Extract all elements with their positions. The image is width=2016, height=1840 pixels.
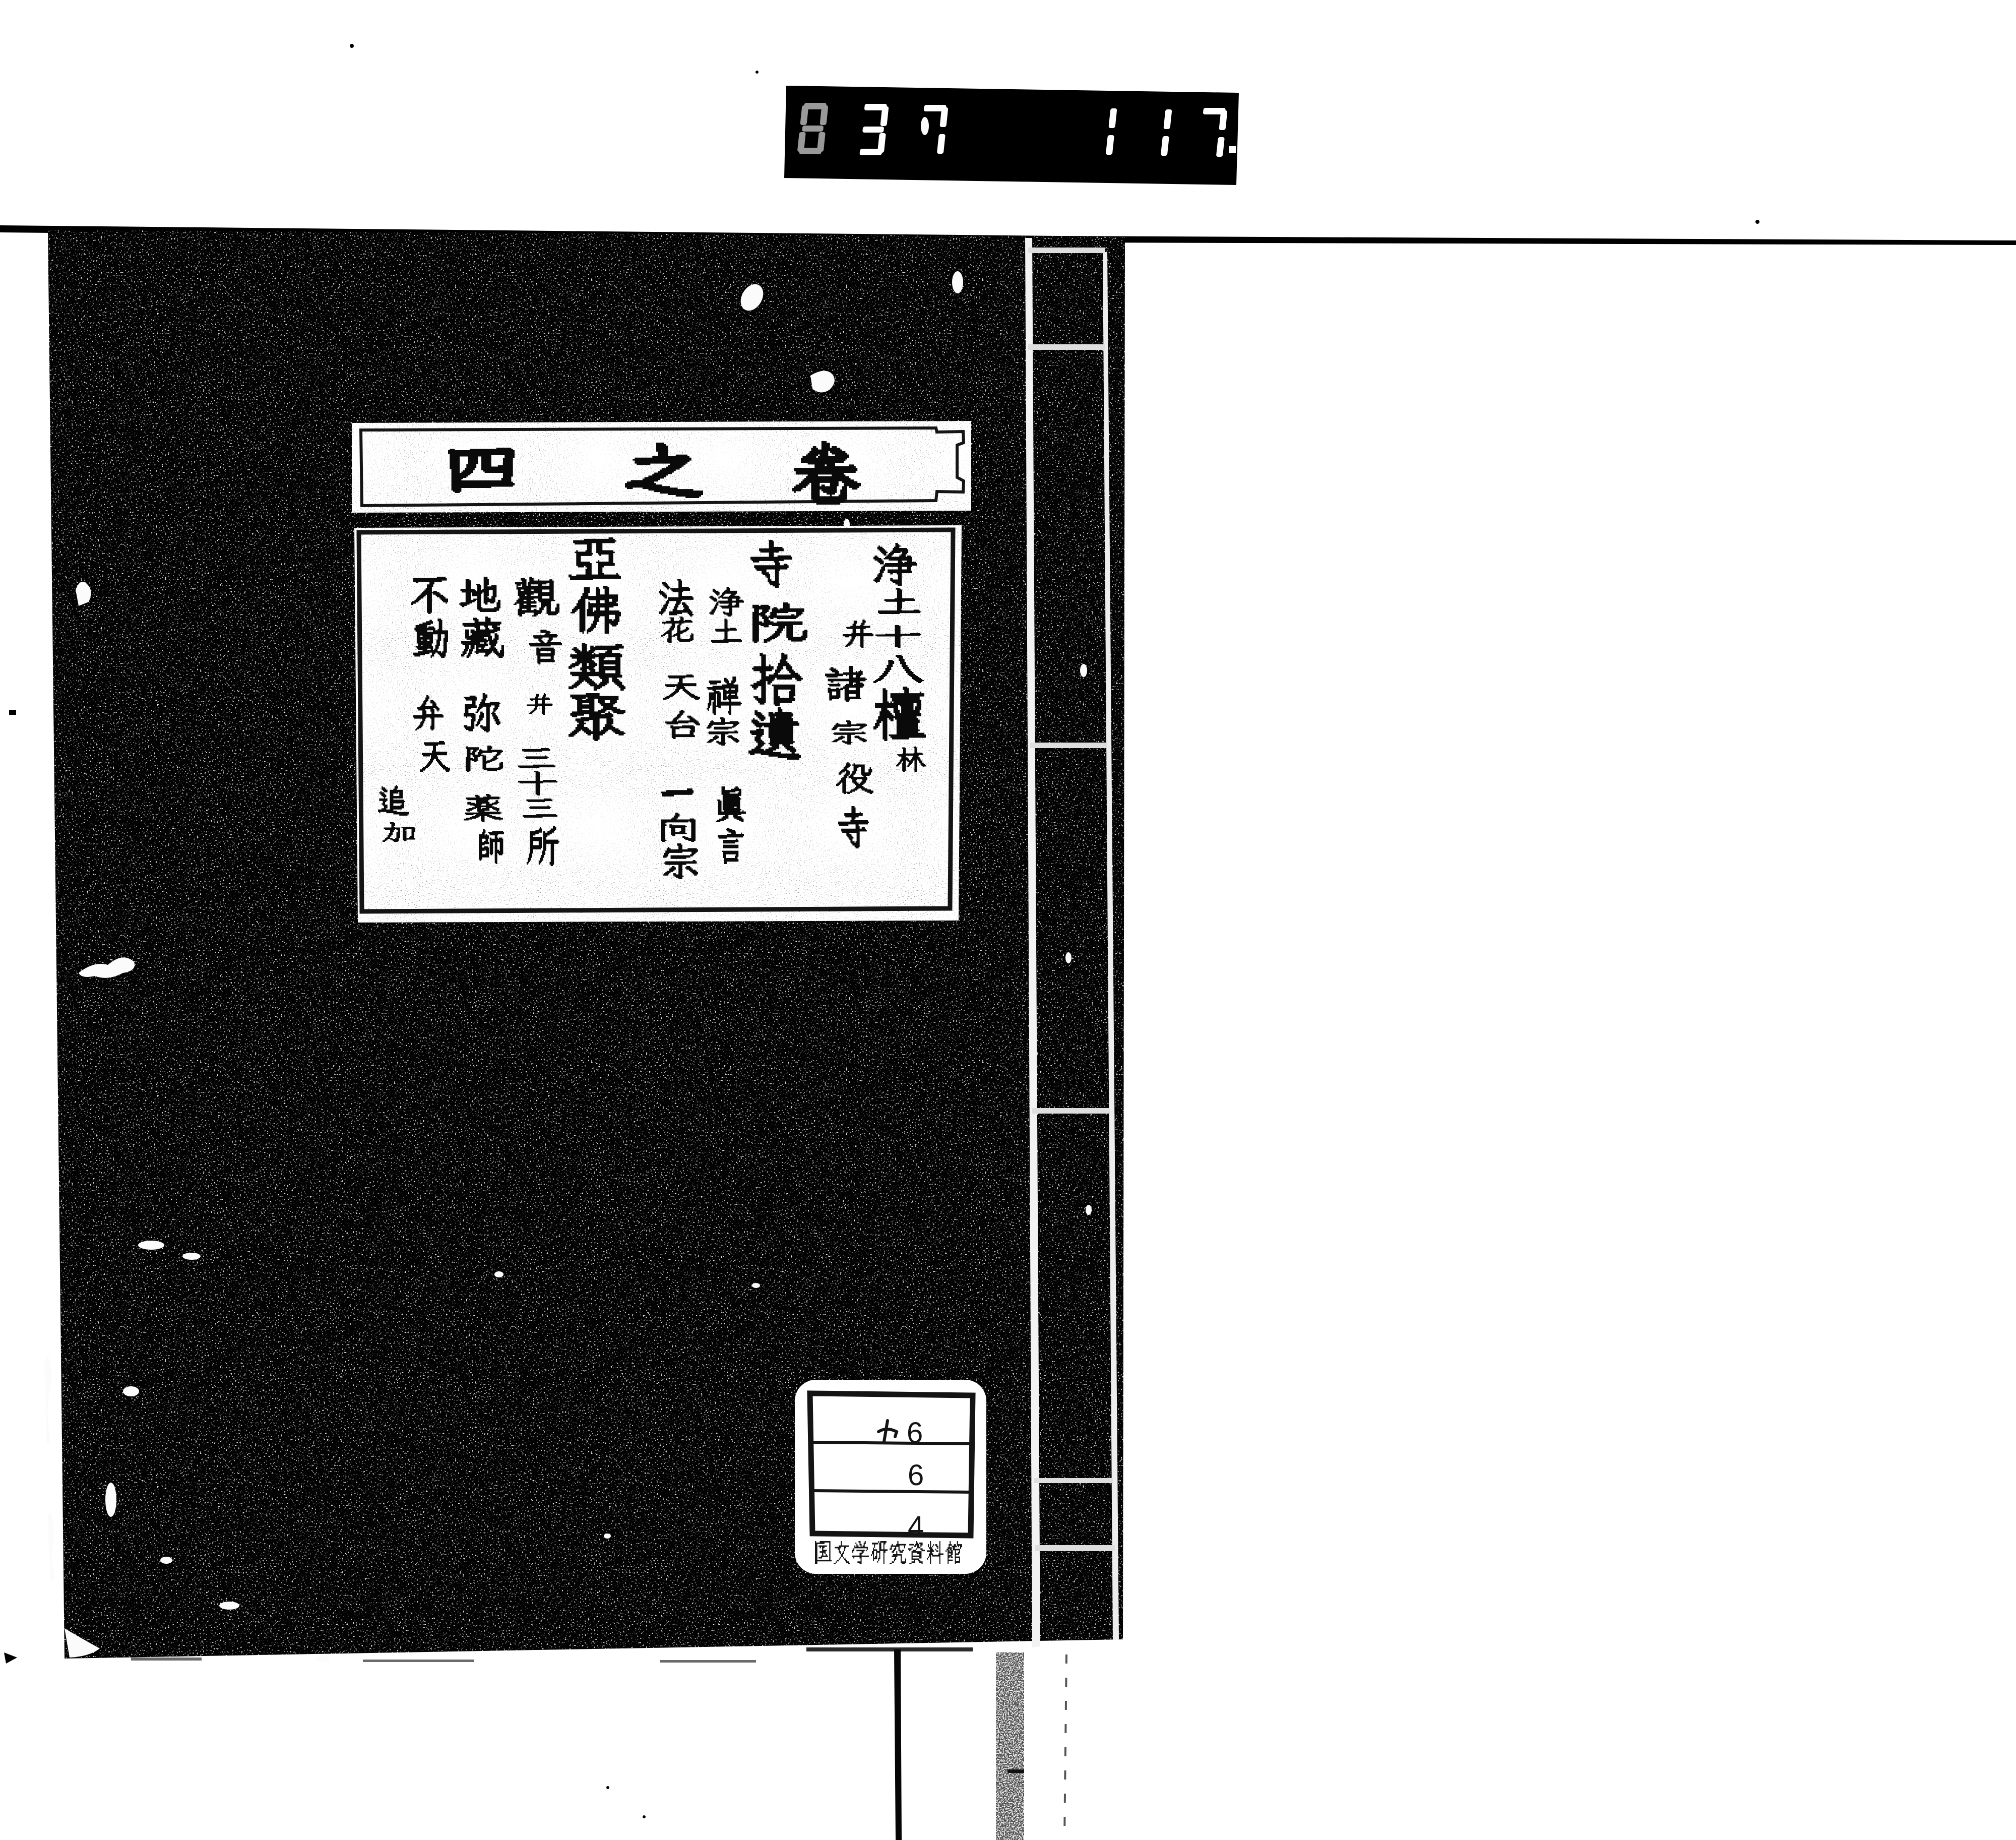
svg-text:4: 4 (908, 1510, 924, 1543)
svg-text:6: 6 (907, 1417, 923, 1449)
svg-text:6: 6 (908, 1459, 924, 1492)
